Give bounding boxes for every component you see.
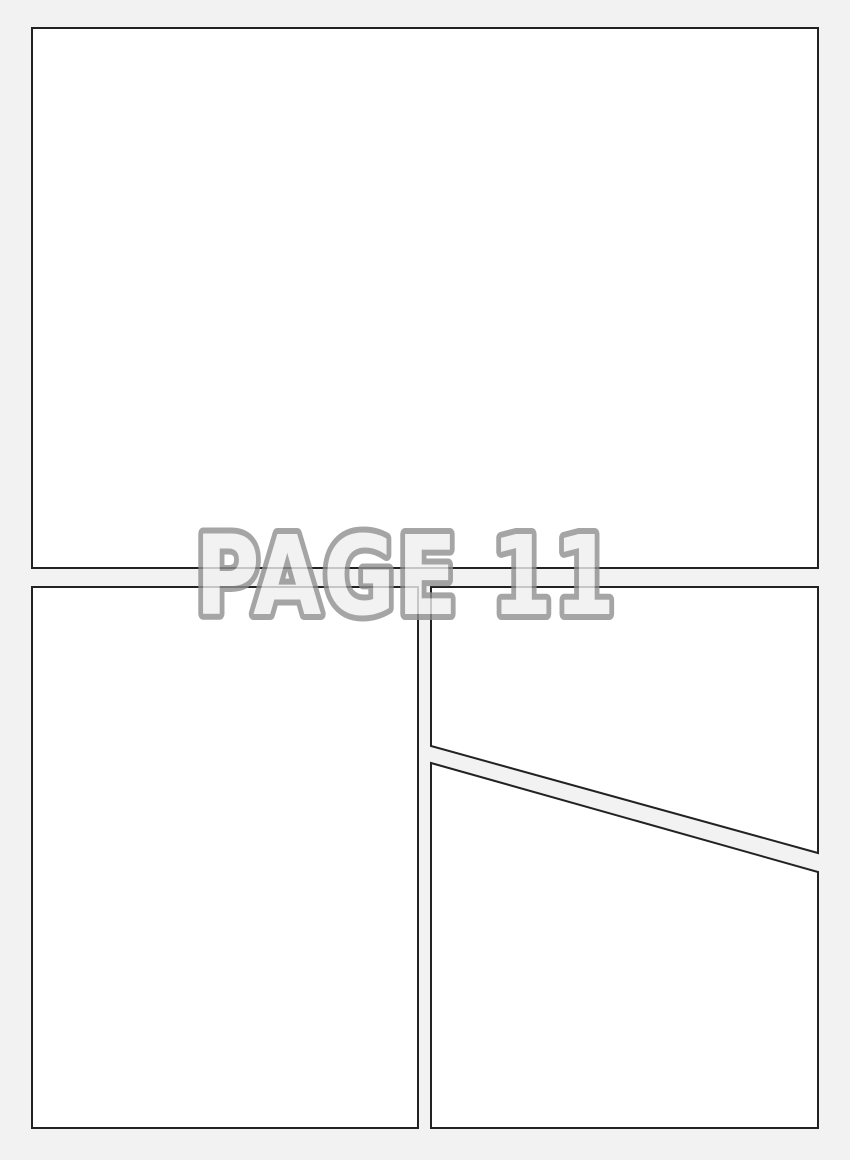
watermark-page-number: PAGE 11 xyxy=(195,512,617,640)
comic-page-canvas: PAGE 11 xyxy=(0,0,850,1160)
panel-top xyxy=(32,28,818,568)
comic-page-template: PAGE 11 xyxy=(0,0,850,1160)
panel-bottom-left xyxy=(32,587,418,1128)
